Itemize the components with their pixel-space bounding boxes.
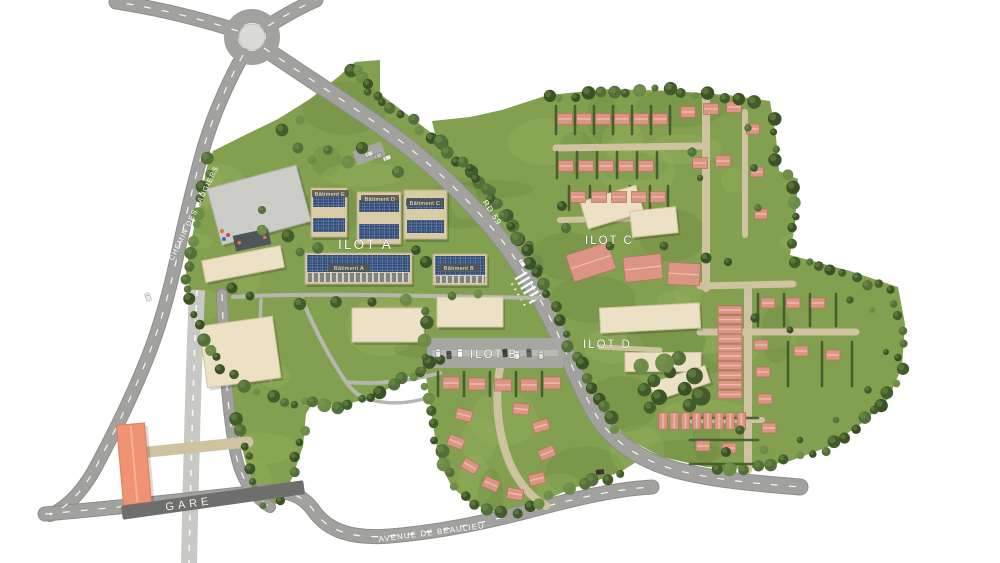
house: [715, 413, 724, 430]
house: [718, 315, 742, 323]
playground: [222, 237, 226, 241]
car: [435, 349, 440, 357]
ilot-a-label: ILOT A: [338, 237, 393, 252]
ilot-c-label: ILOT C: [585, 235, 634, 247]
house: [577, 114, 592, 125]
house: [696, 441, 710, 451]
house: [826, 350, 840, 360]
car: [538, 351, 543, 359]
house: [639, 161, 654, 172]
tan-path: [556, 146, 702, 148]
batiment-b-bar: Bâtiment B: [439, 264, 479, 272]
house: [623, 254, 663, 283]
car: [446, 351, 451, 359]
house: [619, 161, 634, 172]
house: [615, 114, 630, 125]
batiment-b-label: Bâtiment B: [444, 266, 474, 272]
masterplan-svg: GARE Bâtiment A Bâtiment B Bâtiment C Bâ…: [0, 0, 1000, 563]
house: [670, 413, 679, 430]
house: [559, 161, 574, 172]
batiment-e-bar: Bâtiment E: [312, 190, 348, 198]
house: [693, 158, 708, 169]
house: [718, 390, 742, 398]
house: [592, 192, 607, 203]
house: [718, 306, 742, 314]
house: [659, 413, 668, 430]
house: [718, 361, 742, 369]
house: [653, 114, 668, 125]
house: [718, 325, 742, 333]
playground: [220, 229, 224, 233]
house: [506, 487, 524, 501]
building: [630, 206, 681, 240]
house: [761, 298, 775, 308]
building: [352, 308, 426, 345]
house: [495, 379, 512, 391]
house: [681, 107, 696, 118]
grass-patch: [322, 163, 403, 187]
house: [716, 156, 731, 167]
house: [469, 378, 486, 390]
house: [718, 371, 742, 379]
batiment-a-label: Bâtiment A: [334, 266, 364, 272]
ilot-b-label: ILOT B: [470, 349, 518, 361]
house: [756, 367, 770, 377]
house: [758, 394, 772, 404]
car: [457, 349, 462, 357]
house: [718, 381, 742, 389]
house: [692, 413, 701, 430]
house: [667, 262, 700, 286]
house: [704, 413, 713, 430]
house: [704, 104, 719, 115]
building: [437, 297, 505, 330]
house: [786, 298, 800, 308]
house: [632, 192, 647, 203]
house: [443, 377, 460, 389]
house: [718, 352, 742, 360]
batiment-c-label: Bâtiment C: [410, 201, 441, 207]
house: [512, 403, 529, 416]
car: [596, 469, 604, 474]
house: [718, 335, 742, 343]
house: [718, 344, 742, 352]
batiment-d-label: Bâtiment D: [365, 197, 396, 203]
house: [571, 192, 586, 203]
house: [794, 346, 808, 356]
house: [651, 192, 666, 203]
batiment-c-bar: Bâtiment C: [406, 199, 444, 207]
batiment-d-bar: Bâtiment D: [361, 195, 399, 203]
solar-building: [404, 190, 449, 242]
house: [558, 114, 573, 125]
house: [579, 161, 594, 172]
house: [681, 413, 690, 430]
masterplan-page: GARE Bâtiment A Bâtiment B Bâtiment C Bâ…: [0, 0, 1000, 563]
batiment-a-bar: Bâtiment A: [328, 264, 370, 272]
playground: [226, 233, 230, 237]
building: [599, 303, 702, 336]
roundabout-island: [239, 24, 265, 50]
house: [754, 340, 768, 350]
tan-path: [700, 284, 793, 286]
ilot-d-label: ILOT D: [583, 339, 632, 351]
house: [634, 114, 649, 125]
house: [811, 298, 825, 308]
car: [526, 349, 531, 357]
house: [599, 161, 614, 172]
house: [612, 192, 627, 203]
house: [762, 423, 776, 433]
house: [726, 413, 735, 430]
batiment-e-label: Bâtiment E: [315, 192, 345, 198]
house: [596, 114, 611, 125]
house: [544, 377, 561, 389]
house: [521, 379, 538, 391]
